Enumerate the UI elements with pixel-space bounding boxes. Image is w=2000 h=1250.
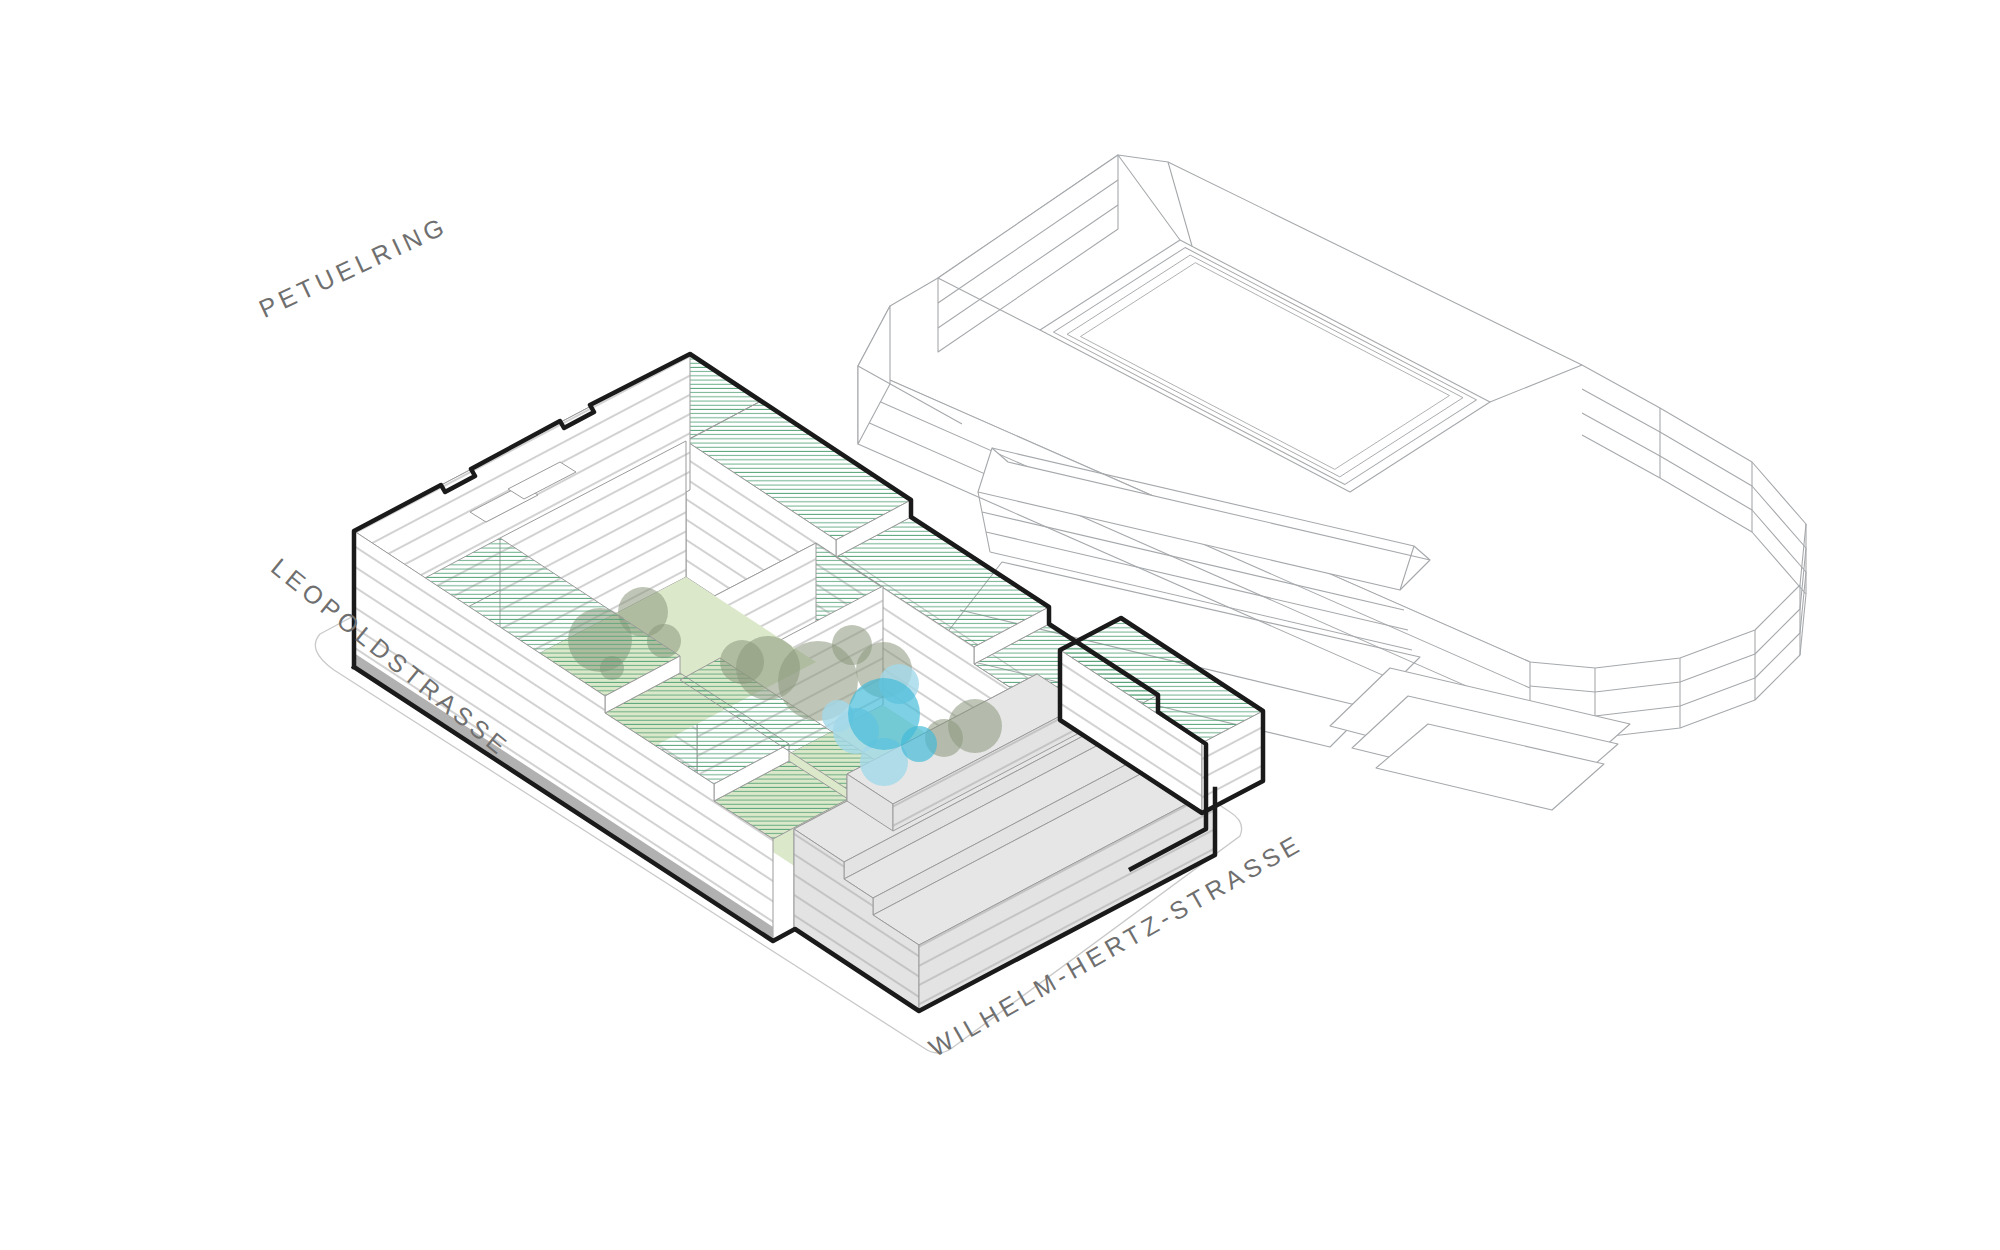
tree: [948, 699, 1002, 753]
street-label-petuelring: PETUELRING: [254, 211, 451, 323]
water-pond: [901, 726, 937, 762]
wireframe-terrace-slabs: [1330, 668, 1630, 810]
axonometric-diagram-canvas: PETUELRING LEOPOLDSTRASSE WILHELM-HERTZ-…: [0, 0, 2000, 1250]
architectural-massing-diagram: PETUELRING LEOPOLDSTRASSE WILHELM-HERTZ-…: [0, 0, 2000, 1250]
